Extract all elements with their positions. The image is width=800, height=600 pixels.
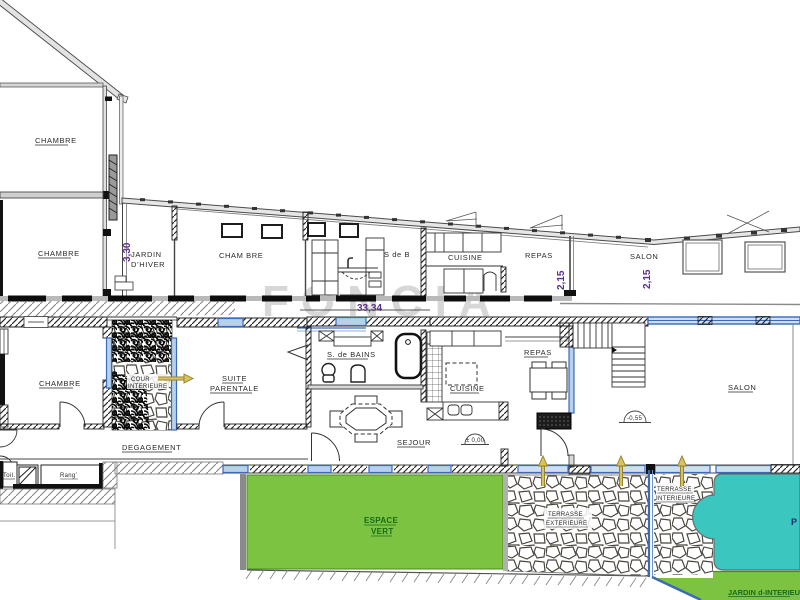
- svg-text:± 0,00: ± 0,00: [466, 438, 485, 444]
- svg-text:REPAS: REPAS: [524, 348, 552, 357]
- svg-text:INTERIEURE: INTERIEURE: [656, 496, 695, 502]
- svg-text:P: P: [791, 517, 797, 527]
- svg-text:COUR: COUR: [131, 377, 150, 383]
- svg-text:S. de BAINS: S. de BAINS: [327, 350, 376, 359]
- svg-text:CHAMBRE: CHAMBRE: [35, 136, 77, 145]
- svg-text:SUITE: SUITE: [222, 374, 247, 383]
- svg-text:CUISINE: CUISINE: [448, 253, 483, 262]
- svg-text:CHAMBRE: CHAMBRE: [39, 379, 81, 388]
- svg-text:-0,55: -0,55: [627, 416, 643, 422]
- svg-text:JARDIN: JARDIN: [131, 250, 162, 259]
- svg-text:S de B: S de B: [384, 250, 410, 259]
- svg-text:INTERIEURE: INTERIEURE: [128, 384, 167, 390]
- svg-text:PARENTALE: PARENTALE: [210, 384, 259, 393]
- svg-text:CHAMBRE: CHAMBRE: [38, 249, 80, 258]
- svg-text:TERRASSE: TERRASSE: [657, 487, 692, 493]
- svg-text:2,15: 2,15: [642, 269, 653, 289]
- svg-text:Toil.: Toil.: [3, 473, 15, 479]
- svg-text:REPAS: REPAS: [525, 251, 553, 260]
- svg-text:TERRASSE: TERRASSE: [548, 512, 583, 518]
- svg-text:ESPACE: ESPACE: [364, 516, 398, 525]
- svg-text:JARDIN d-INTERIEUR: JARDIN d-INTERIEUR: [728, 588, 800, 597]
- svg-text:EXTERIEURE: EXTERIEURE: [546, 521, 587, 527]
- svg-text:D’HIVER: D’HIVER: [131, 260, 165, 269]
- svg-text:33,34: 33,34: [357, 303, 382, 314]
- svg-text:2,15: 2,15: [556, 270, 567, 290]
- svg-text:CUISINE: CUISINE: [450, 384, 485, 393]
- svg-text:Rang’: Rang’: [60, 473, 77, 479]
- svg-text:SALON: SALON: [728, 383, 756, 392]
- svg-text:SEJOUR: SEJOUR: [397, 438, 431, 447]
- svg-text:DEGAGEMENT: DEGAGEMENT: [122, 443, 181, 452]
- svg-text:VERT: VERT: [371, 527, 394, 536]
- svg-text:CHAM BRE: CHAM BRE: [219, 251, 263, 260]
- svg-text:SALON: SALON: [630, 252, 658, 261]
